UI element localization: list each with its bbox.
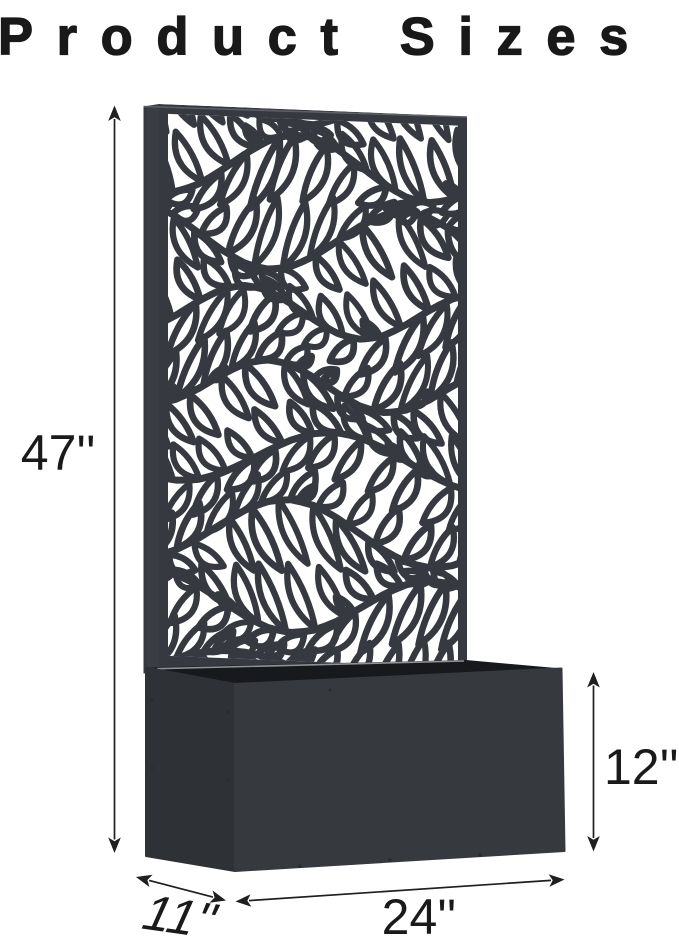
svg-text:24'': 24'' <box>382 889 457 936</box>
svg-text:12'': 12'' <box>604 739 679 795</box>
svg-text:Product Sizes: Product Sizes <box>0 8 652 67</box>
svg-text:47'': 47'' <box>21 425 96 481</box>
